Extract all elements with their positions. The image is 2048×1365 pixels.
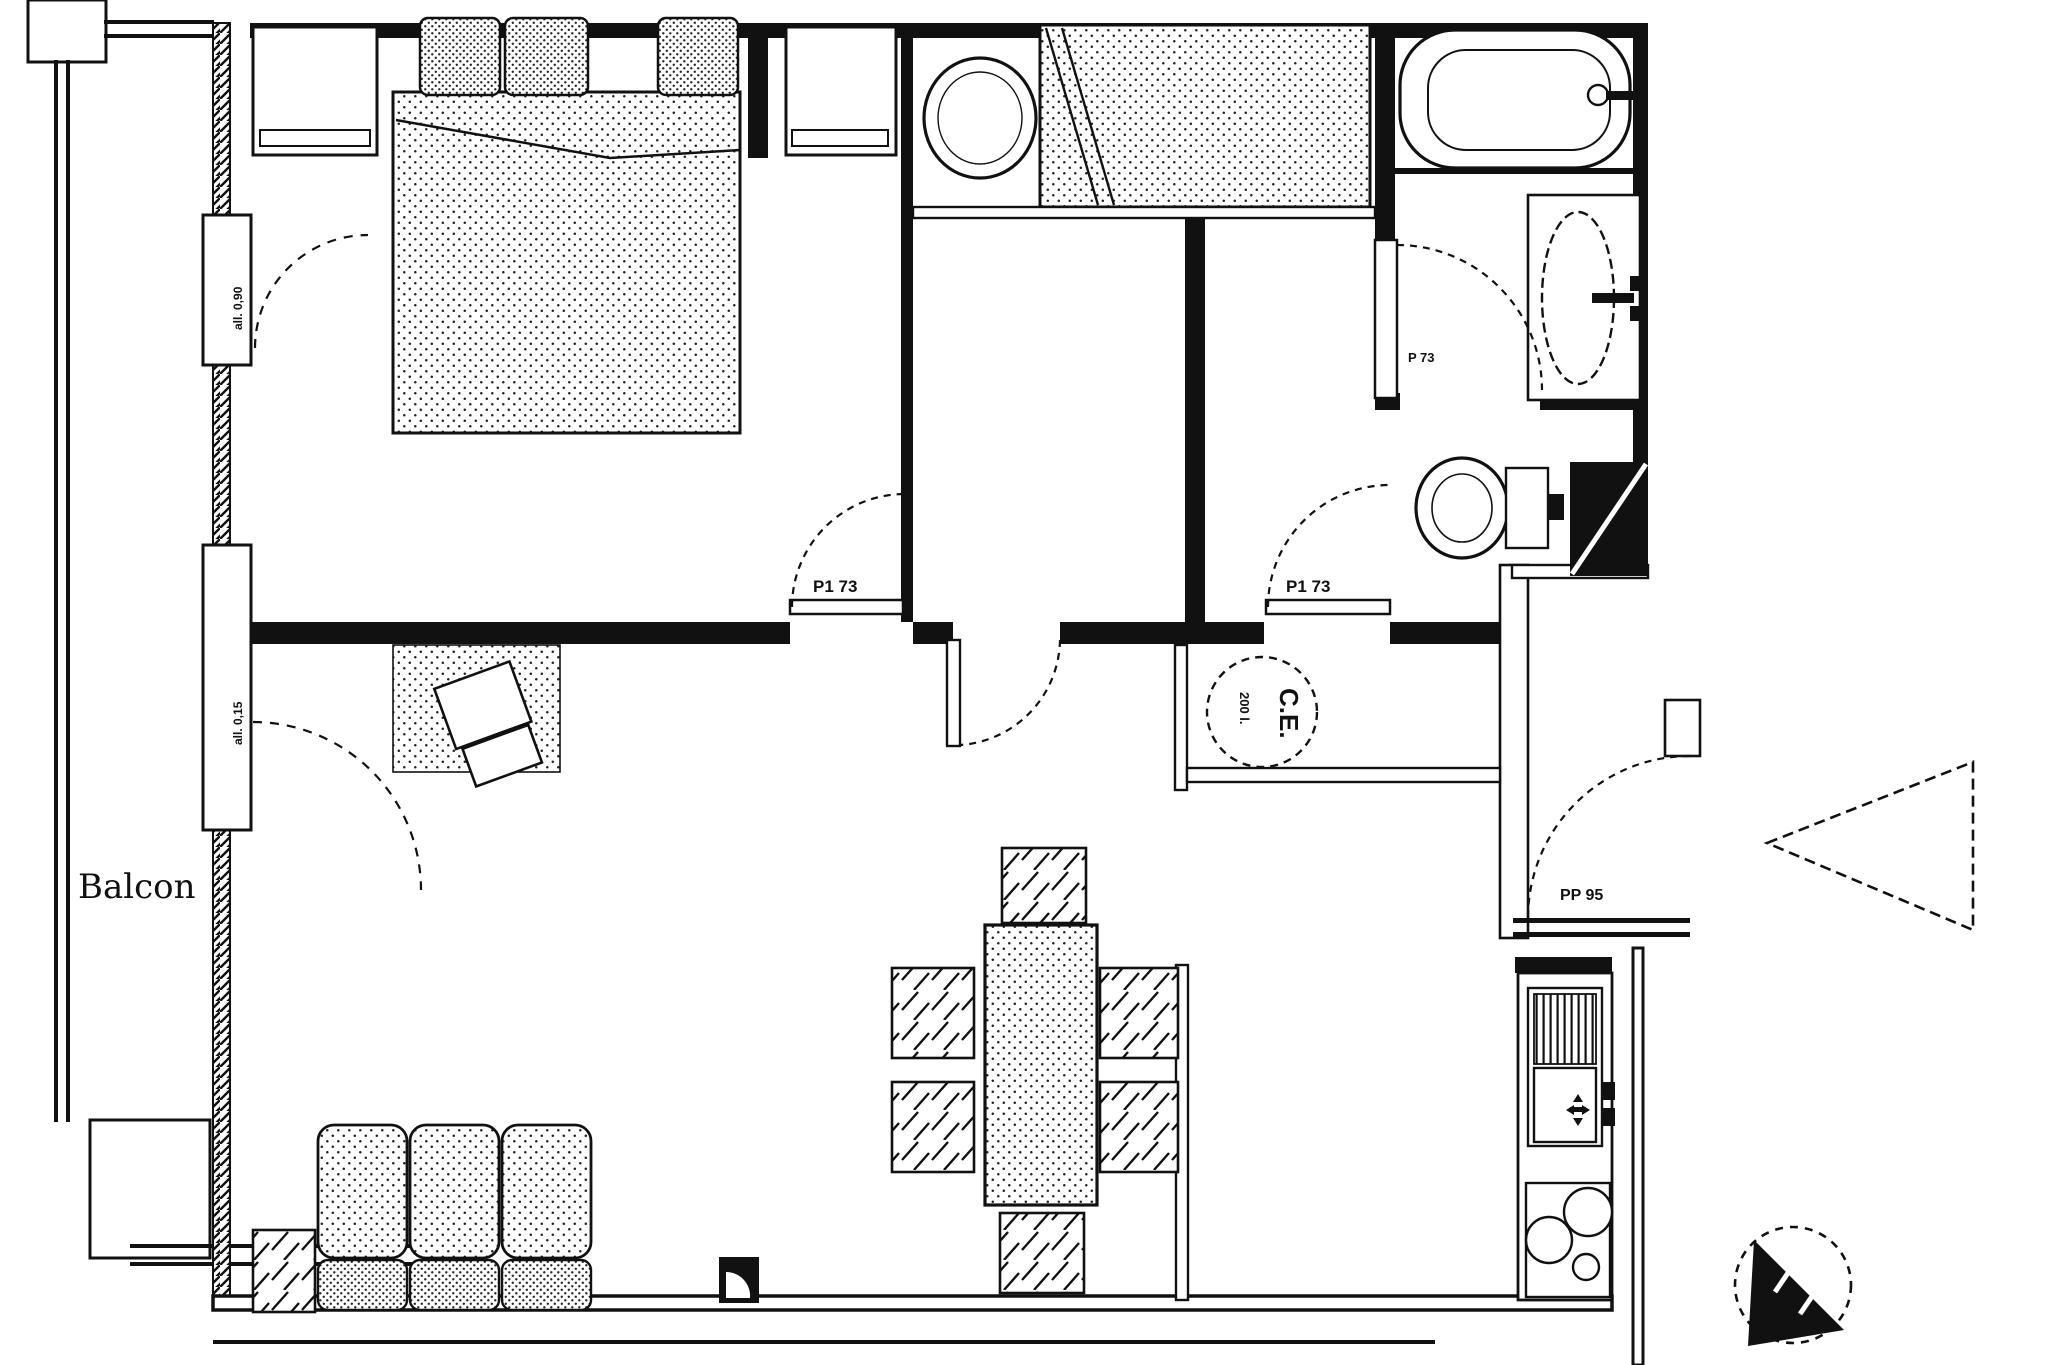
cooktop-burner-small [1573,1254,1599,1280]
cooktop-burner-large [1526,1217,1572,1263]
entrance-door-jamb [1665,700,1700,756]
terrace-edge-line [213,1340,1435,1344]
bedroom1-door-label: P1 73 [813,577,857,596]
washbasin-fitting-1 [1630,276,1643,291]
wc [1416,458,1648,576]
floor-plan: Balcon all. 0,90 all. 0,15 [0,0,2048,1365]
wall-anteroom-left [1185,218,1205,622]
entrance-door-arc [1528,756,1690,918]
bathtub-drain [1588,85,1608,105]
windows: all. 0,90 all. 0,15 [203,215,421,890]
compass [1735,1227,1851,1346]
bed-pillow-1 [420,18,500,95]
bathtub-tap-wall-plate [1634,78,1644,112]
sanitary-door-leaf [1266,600,1390,614]
sofa-side-table [253,1230,315,1312]
entrance-door-label: PP 95 [1560,887,1603,904]
single-bed-frame [913,207,1375,218]
wall-central-seg-4 [1390,622,1512,644]
dining-chair-right-2 [1100,1082,1178,1172]
balcony-corner-post-bottom [90,1120,210,1258]
sofa-back-3 [502,1260,591,1310]
bedroom2-door-arc [960,640,1060,745]
bed-pillow-3 [658,18,738,95]
bed-pillow-2 [505,18,588,95]
balcony-rail-left-inner [66,60,70,1122]
bathroom-door-leaf [1375,240,1397,398]
kitchen-tap-bar-h [1570,1107,1586,1112]
dining-chair-left-1 [892,968,974,1058]
sofa-seat-3 [502,1125,591,1258]
balcony-corner-post-top [28,0,106,62]
sofa-back-1 [318,1260,407,1310]
bedroom1-closet-shelf [260,130,370,146]
dining-chair-bottom [1000,1213,1084,1293]
dining-area [892,848,1178,1293]
water-heater-label: C.E. [1274,688,1304,739]
washbasin-fitting-2 [1630,306,1643,321]
kitchen-fitting-2 [1602,1108,1615,1126]
living-window-sill-label: all. 0,15 [231,701,245,745]
kitchen-fitting-1 [1602,1082,1615,1100]
balcony-label: Balcon [78,867,196,907]
entrance: PP 95 [1513,700,1973,937]
single-bed-pillow [924,58,1036,178]
wall-left-segment-1 [213,23,230,215]
bathroom: P 73 [1375,30,1644,400]
water-heater-capacity-label: 200 l. [1237,692,1252,725]
wall-bedroom-divider [901,23,913,622]
sofa-seat-2 [410,1125,499,1258]
toilet-tank [1506,468,1548,548]
dining-chair-left-2 [892,1082,974,1172]
toilet-bowl [1416,458,1508,558]
sofa-seat-1 [318,1125,407,1258]
dining-chair-top [1002,848,1086,923]
sofa-back-2 [410,1260,499,1310]
wall-central-seg-3 [1060,622,1264,644]
living-french-window [203,545,251,830]
living-room [253,645,759,1312]
bedroom-1: P1 73 [253,18,905,614]
wall-central-seg-1 [250,622,790,644]
wall-bathroom-left [1375,23,1395,240]
balcony-rail-top-1 [104,20,214,24]
bedroom1-closet-2-shelf [792,130,888,146]
wall-closet-stub [748,27,768,158]
wall-kitchen-north [1515,957,1612,973]
entrance-threshold-1 [1513,918,1690,923]
bedroom2-door-leaf [947,640,960,746]
kitchen-sink-bowl [1534,1068,1596,1142]
entrance-arrow-icon [1767,762,1973,930]
bedroom1-door-leaf [790,600,903,614]
wall-entry-hall-left [1500,565,1528,938]
water-heater: C.E. 200 l. [1207,657,1317,767]
balcony-rail-left-outer [54,60,58,1122]
balcony-rail-top-2 [104,34,214,38]
bathroom-divider-line [1395,168,1638,174]
bathroom-door-label: P 73 [1408,350,1435,365]
wall-left-segment-2 [213,365,230,545]
building-edge-right-lower [1633,948,1643,1365]
water-heater-closet-left-wall [1175,645,1187,790]
wall-left-segment-3 [213,830,230,1300]
toilet-valve [1548,494,1564,520]
kitchen [1518,973,1615,1300]
sanitary-door-label: P1 73 [1286,577,1330,596]
bedroom-window-swing-arc [255,235,368,348]
sanitary-door: P1 73 [1266,485,1390,614]
cooktop-burner-medium [1564,1188,1612,1236]
entrance-threshold-2 [1513,932,1690,937]
dining-chair-right-1 [1100,968,1178,1058]
bathroom-door-arc [1397,245,1542,390]
water-heater-closet-front [1187,768,1500,782]
kitchen-sink-drainer [1534,994,1596,1064]
washbasin-tap [1592,293,1634,303]
dining-table [985,925,1097,1205]
bedroom-window-sill-label: all. 0,90 [231,286,245,330]
double-bed [393,92,740,433]
